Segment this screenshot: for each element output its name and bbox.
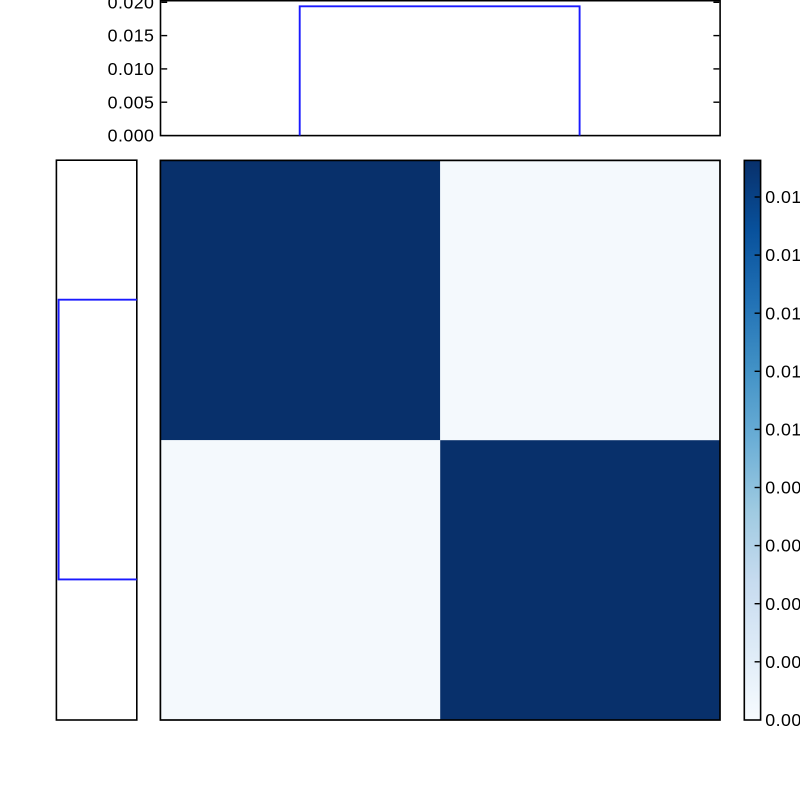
svg-text:0.000: 0.000 xyxy=(108,126,155,146)
svg-text:0.006: 0.006 xyxy=(765,536,800,556)
svg-text:0.012: 0.012 xyxy=(765,361,800,381)
svg-text:0.004: 0.004 xyxy=(765,594,800,614)
svg-text:0.005: 0.005 xyxy=(108,92,155,112)
svg-text:0.010: 0.010 xyxy=(765,420,800,440)
svg-text:0.015: 0.015 xyxy=(108,26,155,46)
svg-text:0.002: 0.002 xyxy=(765,652,800,672)
svg-text:0.008: 0.008 xyxy=(765,478,800,498)
svg-text:0.016: 0.016 xyxy=(765,245,800,265)
svg-text:0.010: 0.010 xyxy=(108,59,155,79)
svg-text:0.014: 0.014 xyxy=(765,303,800,323)
svg-text:0.020: 0.020 xyxy=(108,0,155,12)
svg-text:0.018: 0.018 xyxy=(765,187,800,207)
svg-text:0.000: 0.000 xyxy=(765,710,800,730)
